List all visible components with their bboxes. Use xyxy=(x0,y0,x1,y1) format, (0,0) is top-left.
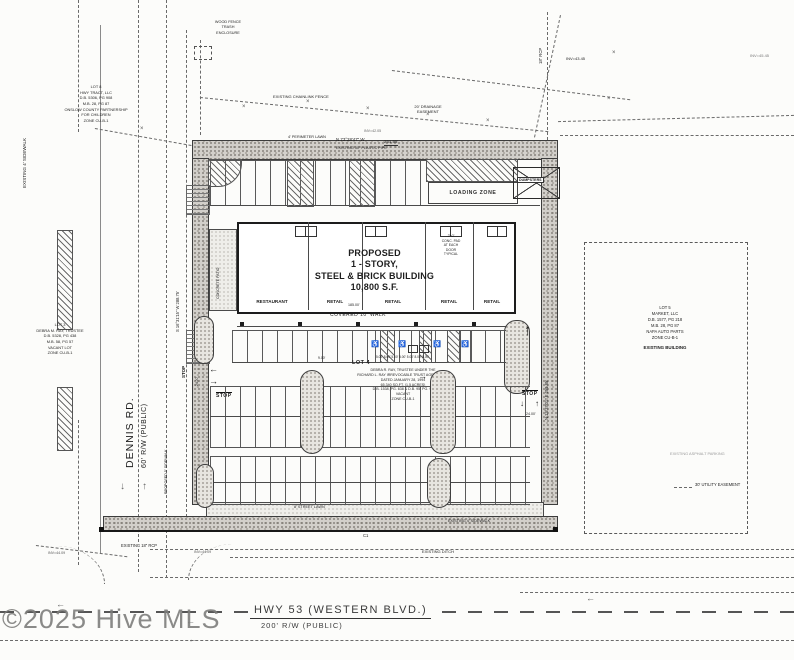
wheelchair-icon-4: ♿ xyxy=(461,341,469,348)
west-sidewalk-segment-b xyxy=(57,387,73,451)
site-west-rw-line xyxy=(186,30,187,532)
hwy-arrow-4: ← xyxy=(188,634,197,644)
hwy-rw-label: 200' R/W (PUBLIC) xyxy=(258,622,346,631)
north-island-b xyxy=(349,160,375,207)
ne-rw-line-a xyxy=(558,115,794,122)
fence-x-1: × xyxy=(242,104,246,111)
bearing-top-distance: 261.95' xyxy=(384,139,398,146)
lot4-title: LOT 4 xyxy=(352,360,370,366)
west-aisle-dim: 24.00' xyxy=(196,362,200,386)
north-parking-row xyxy=(210,160,426,206)
chainlink-fence-label: EXISTING CHAINLINK FENCE xyxy=(273,95,329,100)
street-lawn-label: 8' STREET LAWN xyxy=(294,505,325,509)
inv-4205-label: INV=42.05 xyxy=(364,129,381,133)
existing-ditch-label: EXISTING DITCH xyxy=(420,550,456,555)
dennis-flow-arrow-up: ↑ xyxy=(142,481,147,493)
row-c-center-line xyxy=(210,482,530,483)
stall-depth-dim: 9.00' xyxy=(318,357,325,361)
wheelchair-icon-3: ♿ xyxy=(433,341,441,348)
east-arrow-up: ↑ xyxy=(535,399,539,408)
se-corner-monument xyxy=(553,527,558,532)
east-drive-arrow: ↑ xyxy=(524,322,532,339)
dennis-rw-label: 60' R/W (PUBLIC) xyxy=(141,374,149,468)
north-driveway-crosswalk xyxy=(186,185,210,215)
bearing-east: N 13°37'01" E 259.85' xyxy=(545,306,550,420)
loading-zone-label: LOADING ZONE xyxy=(450,190,497,196)
loading-zone-outline: LOADING ZONE xyxy=(428,182,518,204)
fence-x-8: × xyxy=(607,96,611,103)
unit-label-retail-2: RETAIL xyxy=(371,299,415,304)
dumpsters-label: DUMPSTERS xyxy=(517,177,544,183)
fence-x-6: × xyxy=(140,126,144,133)
existing-rcp-label: EXISTING 18" RCP xyxy=(120,544,158,549)
loading-zone-landscape xyxy=(426,159,518,182)
unit-label-retail-4: RETAIL xyxy=(470,299,514,304)
island-center-west xyxy=(300,370,324,454)
fence-x-7: × xyxy=(612,50,616,57)
north-aisle-line xyxy=(210,205,540,206)
lot5-boundary xyxy=(584,242,748,534)
aisle-arrow-center: → xyxy=(418,371,427,381)
hc-dims-row: 5.00' 8.00' 5.00' 5.00' 5.00' 8.00' 5.00… xyxy=(376,356,429,360)
unit-label-restaurant: RESTAURANT xyxy=(250,299,294,304)
stop-label-west-vertical: STOP xyxy=(181,356,186,378)
concrete-patio-label: CONCRETE PATIO xyxy=(216,243,220,299)
unit-label-retail-3: RETAIL xyxy=(427,299,471,304)
existing-sidewalk-west-label: EXISTING 4' SIDEWALK xyxy=(22,88,27,188)
ditch-line-a xyxy=(150,549,794,550)
door-pad-2 xyxy=(365,226,387,237)
fence-x-2: × xyxy=(306,99,310,106)
dennis-west-rw-line-b xyxy=(78,420,79,565)
unit-divider-4 xyxy=(473,222,474,310)
building-title: PROPOSED 1 - STORY, STEEL & BRICK BUILDI… xyxy=(297,248,452,293)
conc-pad-note: 2'x2' CONC. PAD AT EACH DOOR TYPICAL xyxy=(434,234,468,257)
ditch-line-b xyxy=(230,557,794,558)
hwy-north-edge xyxy=(150,577,794,578)
fence-x-3: × xyxy=(366,106,370,113)
chainlink-fence-line xyxy=(200,97,548,132)
west-sidewalk-segment-a xyxy=(57,230,73,330)
fence-x-4: × xyxy=(426,112,430,119)
door-pad-4 xyxy=(487,226,507,237)
sw-corner-monument xyxy=(99,527,104,532)
parking-row-a-east xyxy=(470,330,506,363)
lot5-existing-building-label: EXISTING BUILDING xyxy=(612,345,718,350)
existing-asphalt-label: EXISTING ASPHALT PARKING xyxy=(670,452,725,456)
west-aisle-arrow-in: ← xyxy=(209,364,218,374)
hc-aisle-3 xyxy=(447,330,461,363)
dennis-flow-arrow-down: ↓ xyxy=(120,481,125,493)
bearing-top-label: N 73°28'47" W xyxy=(336,137,365,142)
lot5-text: LOT 5 MARKET, LLC D.B. 1577, PG 218 M.B.… xyxy=(604,305,726,341)
island-center-east xyxy=(430,370,456,454)
curve-tag-c1: C1 xyxy=(363,534,368,539)
hwy-south-edge xyxy=(0,640,794,641)
parking-row-c xyxy=(210,456,530,505)
site-plan: DENNIS RD. 60' R/W (PUBLIC) ↓ ↑ LOT 8 HW… xyxy=(0,0,794,660)
hc-sign-box-2 xyxy=(419,345,429,353)
inv-4345-label: INV=43.45 xyxy=(566,57,585,62)
hwy-arrow-5: ← xyxy=(586,593,595,603)
island-south-east xyxy=(427,458,451,508)
ne-rw-line-b xyxy=(560,135,794,136)
west-aisle-arrow-out: → xyxy=(209,376,218,386)
fence-x-5: × xyxy=(486,118,490,125)
existing-sidewalk-south-label: EXISTING 4' SIDEWALK xyxy=(448,519,490,523)
canopy-columns xyxy=(240,322,510,326)
utility-easement-label: 30' UTILITY EASEMENT xyxy=(695,483,740,488)
ne-old-fence-line xyxy=(392,70,630,100)
concrete-patio xyxy=(209,229,237,311)
bearing-west: S 16°31'15" W 288.75' xyxy=(176,246,181,332)
south-boundary-line xyxy=(100,530,558,532)
lot3-text: LOT 3 DEBRA M. RAY, TRUSTEE D.B. 5328, P… xyxy=(12,322,108,356)
plastic-pipe-label: EXISTING 30" PLASTIC PIPE xyxy=(336,146,387,150)
hc-sign-box-1 xyxy=(408,345,418,353)
wheelchair-icon-1: ♿ xyxy=(371,341,379,348)
island-west-north xyxy=(194,316,214,364)
inv-4545-label: INV=45.45 xyxy=(750,54,769,59)
hwy-name-label: HWY 53 (WESTERN BLVD.) xyxy=(250,604,431,619)
proposed-sidewalk-label-b: PROPOSED 5' SIDEWALK xyxy=(164,430,168,494)
north-island-a xyxy=(287,160,314,207)
wood-fence-note: WOOD FENCE TRASH ENCLOSURE xyxy=(205,20,251,36)
utility-easement-line xyxy=(674,487,692,488)
perimeter-lawn-label: 4' PERIMETER LAWN xyxy=(288,135,326,139)
hwy-north-edge-right xyxy=(520,592,794,593)
lot8-text: LOT 8 HWY TRACT, LLC D.B. 5306, PG 908 M… xyxy=(48,84,144,124)
rcp-ne-label: 18" RCP xyxy=(539,28,544,64)
covered-walk-label: COVERED 10' WALK xyxy=(330,313,386,319)
dennis-road-name: DENNIS RD. xyxy=(124,368,136,468)
island-south-west xyxy=(196,464,214,508)
row-b-center-line xyxy=(210,416,530,417)
door-pad-1 xyxy=(295,226,317,237)
parking-row-a-west xyxy=(232,330,375,363)
covered-walk-edge xyxy=(237,326,512,327)
building-width-dim: 185.00' xyxy=(348,303,360,307)
parking-row-b xyxy=(210,386,530,448)
mls-watermark: ©2025 Hive MLS xyxy=(2,604,221,635)
wheelchair-icon-2: ♿ xyxy=(398,341,406,348)
trash-enclosure-outline xyxy=(194,46,212,60)
